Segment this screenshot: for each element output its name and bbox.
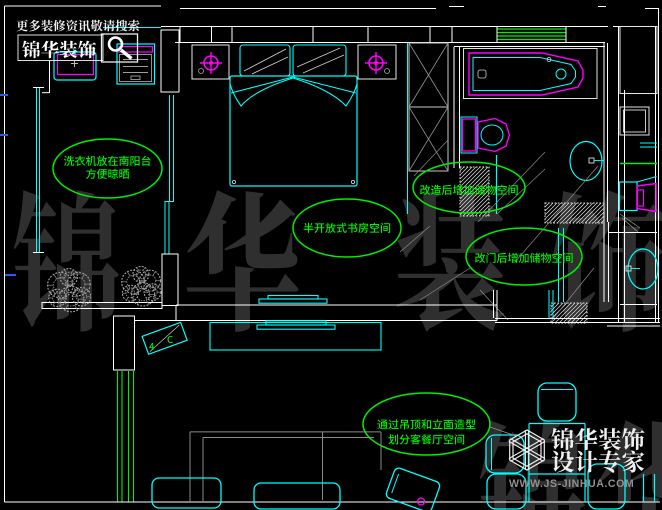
svg-text:WWW.JS-JINHUA.COM: WWW.JS-JINHUA.COM (509, 478, 634, 490)
